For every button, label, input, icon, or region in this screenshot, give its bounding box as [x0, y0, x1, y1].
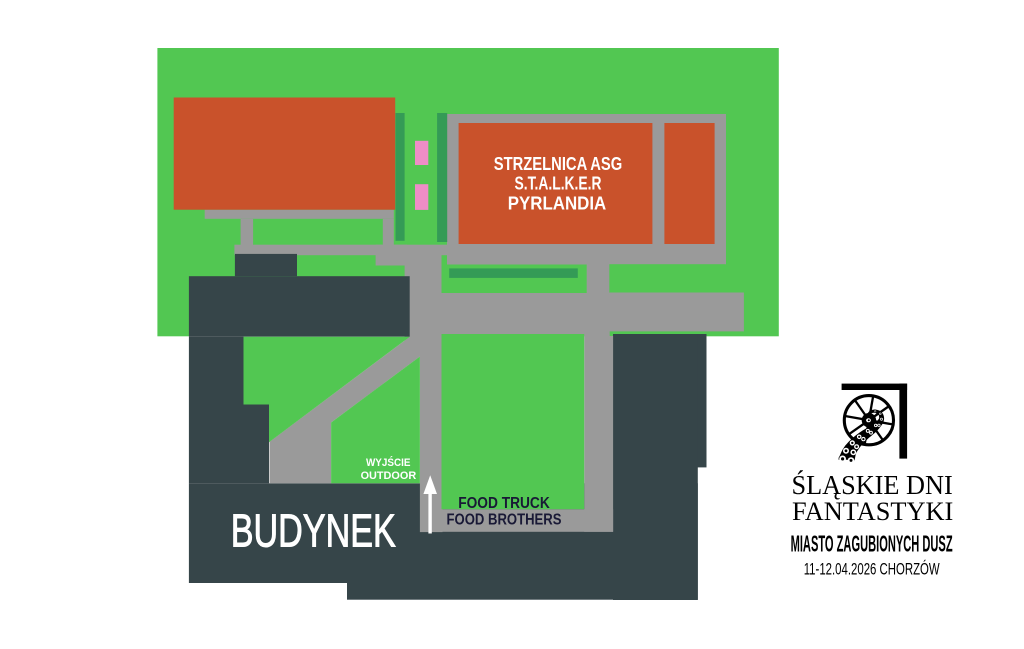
svg-text:OUTDOOR: OUTDOOR	[361, 470, 417, 482]
svg-text:BUDYNEK: BUDYNEK	[231, 505, 396, 557]
svg-text:MIASTO ZAGUBIONYCH DUSZ: MIASTO ZAGUBIONYCH DUSZ	[791, 531, 953, 557]
svg-text:STRZELNICA ASG: STRZELNICA ASG	[494, 154, 623, 174]
svg-text:ŚLĄSKIE DNI: ŚLĄSKIE DNI	[792, 470, 953, 500]
svg-text:11-12.04.2026 CHORZÓW: 11-12.04.2026 CHORZÓW	[804, 560, 940, 579]
svg-text:PYRLANDIA: PYRLANDIA	[508, 194, 607, 214]
svg-text:FANTASTYKI: FANTASTYKI	[792, 497, 953, 526]
svg-text:FOOD TRUCK: FOOD TRUCK	[458, 495, 550, 512]
svg-text:S.T.A.L.K.E.R: S.T.A.L.K.E.R	[515, 173, 602, 193]
svg-text:WYJŚCIE: WYJŚCIE	[366, 456, 411, 469]
svg-text:FOOD BROTHERS: FOOD BROTHERS	[447, 511, 562, 528]
